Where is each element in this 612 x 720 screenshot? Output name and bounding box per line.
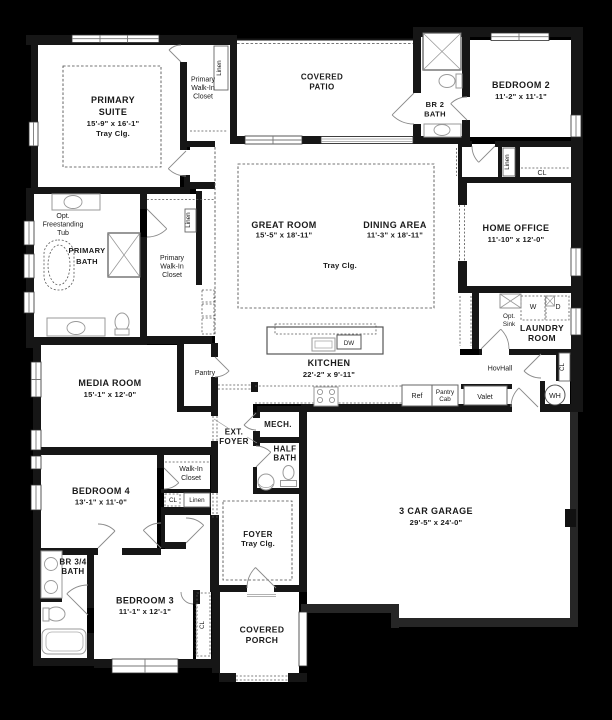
- svg-text:BATH: BATH: [61, 567, 84, 576]
- svg-text:BR 2: BR 2: [426, 100, 445, 109]
- svg-text:Freestanding: Freestanding: [43, 222, 84, 229]
- svg-text:ROOM: ROOM: [528, 333, 556, 343]
- svg-text:EXT.: EXT.: [225, 428, 244, 437]
- svg-text:Walk-In: Walk-In: [160, 264, 184, 271]
- svg-text:Pantry: Pantry: [436, 389, 455, 396]
- svg-text:PORCH: PORCH: [246, 635, 279, 645]
- svg-text:DW: DW: [344, 340, 355, 347]
- svg-text:HovHall: HovHall: [488, 366, 513, 373]
- svg-text:PRIMARY: PRIMARY: [91, 95, 135, 105]
- svg-text:GREAT ROOM: GREAT ROOM: [251, 220, 316, 230]
- svg-text:CL: CL: [559, 362, 566, 371]
- svg-text:Sink: Sink: [503, 321, 516, 328]
- svg-text:Tub: Tub: [57, 230, 69, 237]
- svg-text:PATIO: PATIO: [309, 83, 334, 92]
- svg-text:Walk-In: Walk-In: [191, 85, 215, 92]
- svg-text:CL: CL: [169, 497, 178, 504]
- svg-text:Closet: Closet: [181, 475, 201, 482]
- svg-text:11'-2" x 11'-1": 11'-2" x 11'-1": [495, 92, 547, 101]
- svg-text:Cab: Cab: [439, 396, 451, 403]
- svg-text:PRIMARY: PRIMARY: [68, 246, 105, 255]
- svg-text:Tray Clg.: Tray Clg.: [323, 261, 357, 270]
- svg-text:COVERED: COVERED: [240, 625, 285, 635]
- svg-text:BEDROOM 2: BEDROOM 2: [492, 80, 550, 90]
- svg-text:11'-1" x 12'-1": 11'-1" x 12'-1": [119, 607, 171, 616]
- svg-text:BEDROOM 3: BEDROOM 3: [116, 596, 174, 606]
- svg-text:CL: CL: [199, 620, 206, 629]
- svg-text:LAUNDRY: LAUNDRY: [520, 323, 564, 333]
- svg-text:Tray Clg.: Tray Clg.: [96, 129, 130, 138]
- svg-text:Ref: Ref: [412, 393, 423, 400]
- svg-text:15'-9" x 16'-1": 15'-9" x 16'-1": [87, 119, 140, 128]
- svg-text:Primary: Primary: [191, 77, 216, 84]
- svg-text:SUITE: SUITE: [99, 107, 128, 117]
- svg-text:Linen: Linen: [504, 154, 511, 170]
- svg-text:KITCHEN: KITCHEN: [308, 358, 351, 368]
- svg-text:13'-1" x 11'-0": 13'-1" x 11'-0": [75, 498, 127, 507]
- svg-text:22'-2" x 9'-11": 22'-2" x 9'-11": [303, 370, 355, 379]
- svg-text:Tray Clg.: Tray Clg.: [241, 539, 275, 548]
- svg-text:11'-10" x 12'-0": 11'-10" x 12'-0": [488, 235, 545, 244]
- svg-text:3 CAR GARAGE: 3 CAR GARAGE: [399, 506, 473, 516]
- svg-text:HOME OFFICE: HOME OFFICE: [483, 223, 550, 233]
- svg-text:HALF: HALF: [274, 445, 297, 454]
- svg-text:Linen: Linen: [189, 497, 205, 504]
- svg-text:Closet: Closet: [193, 94, 213, 101]
- svg-text:D: D: [555, 304, 560, 311]
- svg-text:DINING AREA: DINING AREA: [363, 220, 427, 230]
- svg-text:BEDROOM 4: BEDROOM 4: [72, 486, 130, 496]
- svg-text:WH: WH: [549, 393, 561, 400]
- svg-text:W: W: [530, 304, 537, 311]
- svg-text:Walk-In: Walk-In: [179, 466, 203, 473]
- svg-text:Primary: Primary: [160, 255, 185, 262]
- svg-text:Closet: Closet: [162, 272, 182, 279]
- svg-text:Opt.: Opt.: [503, 313, 515, 320]
- svg-text:Linen: Linen: [185, 212, 192, 228]
- svg-text:MECH.: MECH.: [264, 420, 292, 429]
- svg-text:15'-5" x 18'-11": 15'-5" x 18'-11": [256, 231, 313, 240]
- svg-text:Pantry: Pantry: [195, 370, 216, 377]
- svg-text:MEDIA ROOM: MEDIA ROOM: [78, 378, 141, 388]
- svg-text:FOYER: FOYER: [219, 437, 249, 446]
- svg-text:COVERED: COVERED: [301, 73, 343, 82]
- svg-text:BATH: BATH: [424, 110, 446, 119]
- svg-text:29'-5" x 24'-0": 29'-5" x 24'-0": [410, 518, 463, 527]
- svg-text:Opt.: Opt.: [56, 213, 69, 220]
- svg-text:15'-1" x 12'-0": 15'-1" x 12'-0": [84, 390, 137, 399]
- svg-text:CL: CL: [538, 170, 547, 177]
- svg-text:Linen: Linen: [216, 60, 223, 76]
- svg-text:11'-3" x 18'-11": 11'-3" x 18'-11": [367, 231, 423, 240]
- svg-text:FOYER: FOYER: [243, 530, 273, 539]
- svg-text:BATH: BATH: [76, 257, 98, 266]
- svg-text:BR 3/4: BR 3/4: [59, 558, 86, 567]
- svg-text:Valet: Valet: [477, 394, 492, 401]
- svg-text:BATH: BATH: [273, 454, 296, 463]
